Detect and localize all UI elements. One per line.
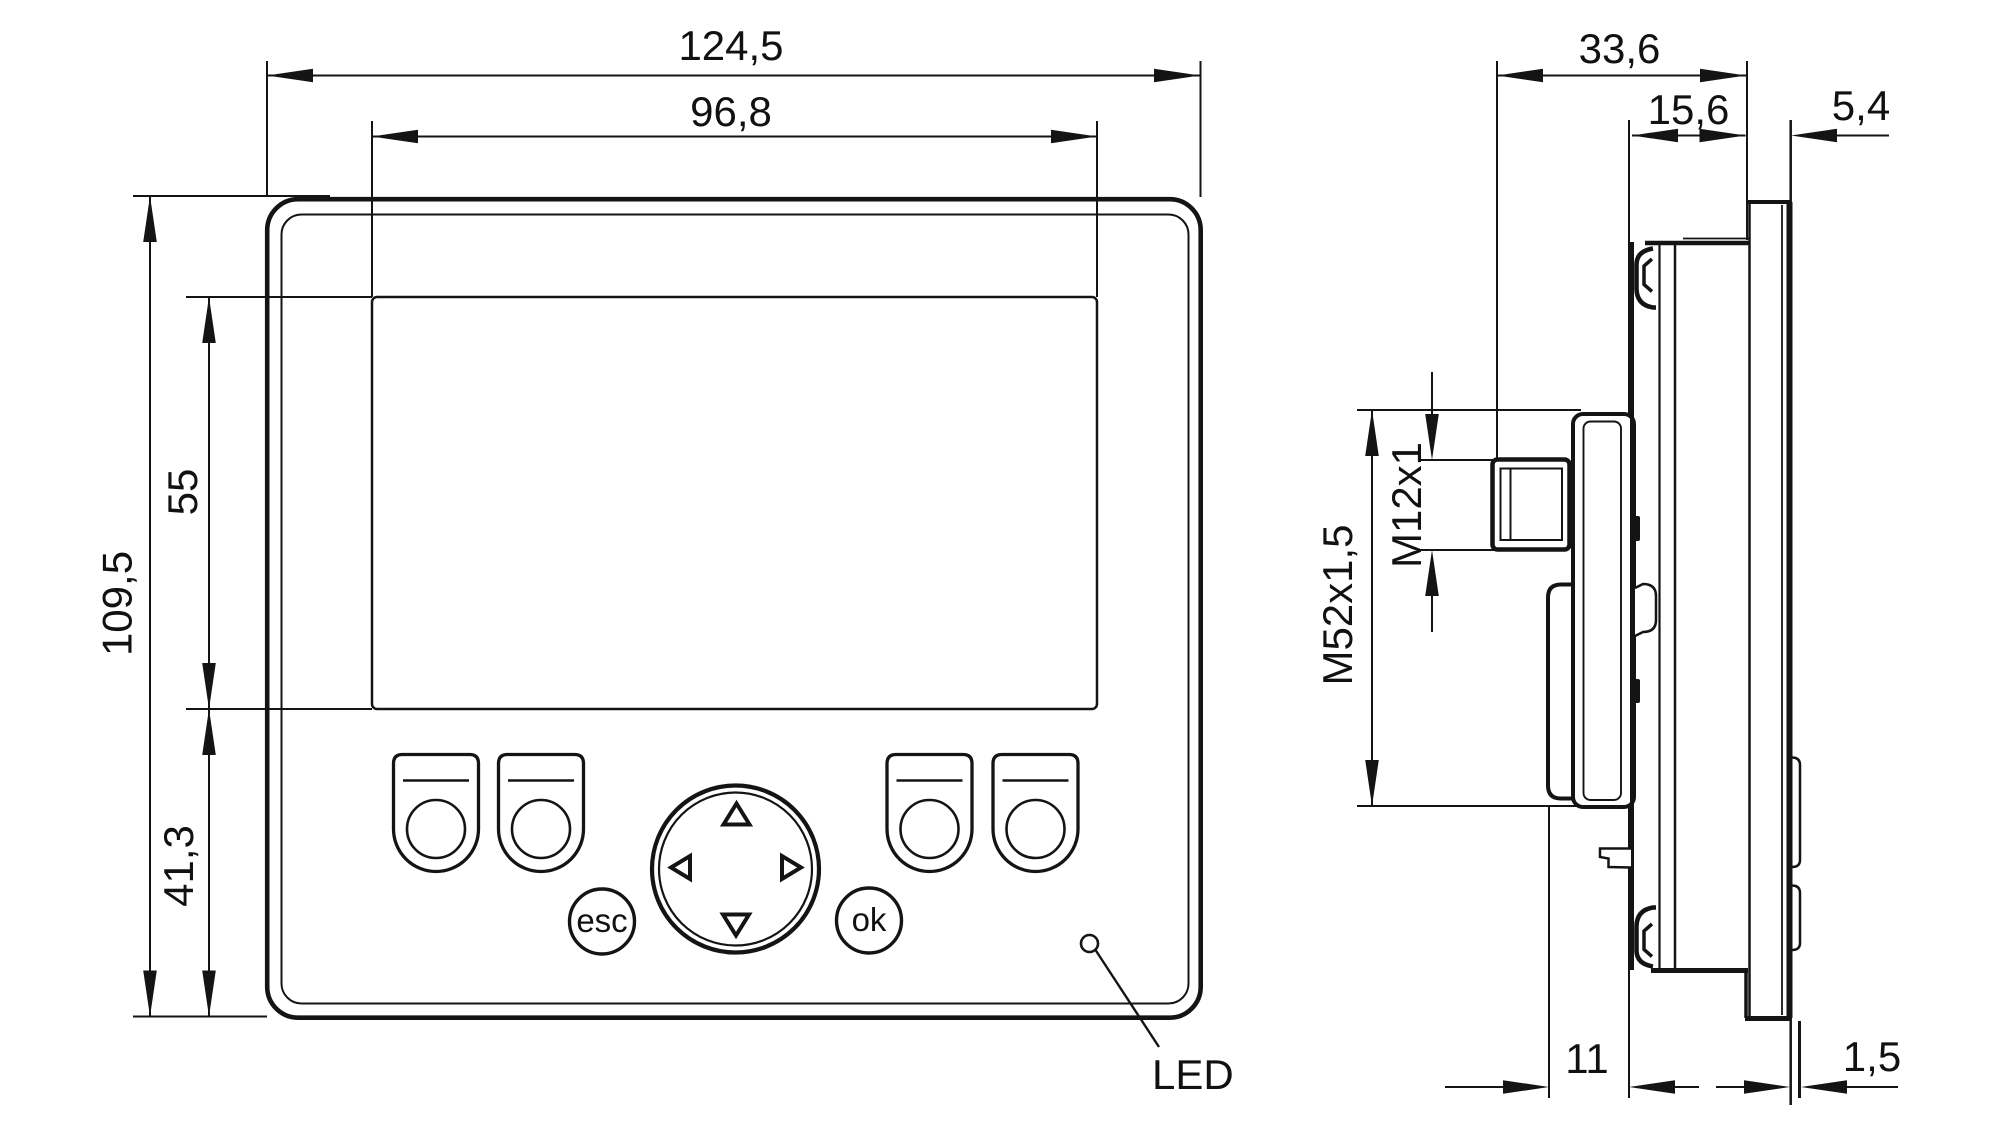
svg-text:41,3: 41,3 xyxy=(155,825,202,907)
svg-text:M52x1,5: M52x1,5 xyxy=(1314,524,1361,685)
svg-text:ok: ok xyxy=(852,901,887,938)
svg-text:1,5: 1,5 xyxy=(1843,1033,1901,1080)
svg-text:15,6: 15,6 xyxy=(1648,86,1730,133)
svg-text:11: 11 xyxy=(1565,1035,1609,1082)
svg-text:55: 55 xyxy=(159,469,206,516)
svg-text:33,6: 33,6 xyxy=(1579,25,1661,72)
svg-text:LED: LED xyxy=(1152,1051,1234,1098)
svg-text:esc: esc xyxy=(576,902,627,939)
svg-text:109,5: 109,5 xyxy=(94,551,141,656)
svg-text:M12x1: M12x1 xyxy=(1383,442,1430,568)
svg-text:96,8: 96,8 xyxy=(690,88,772,135)
svg-text:124,5: 124,5 xyxy=(678,22,783,69)
svg-text:5,4: 5,4 xyxy=(1832,82,1890,129)
